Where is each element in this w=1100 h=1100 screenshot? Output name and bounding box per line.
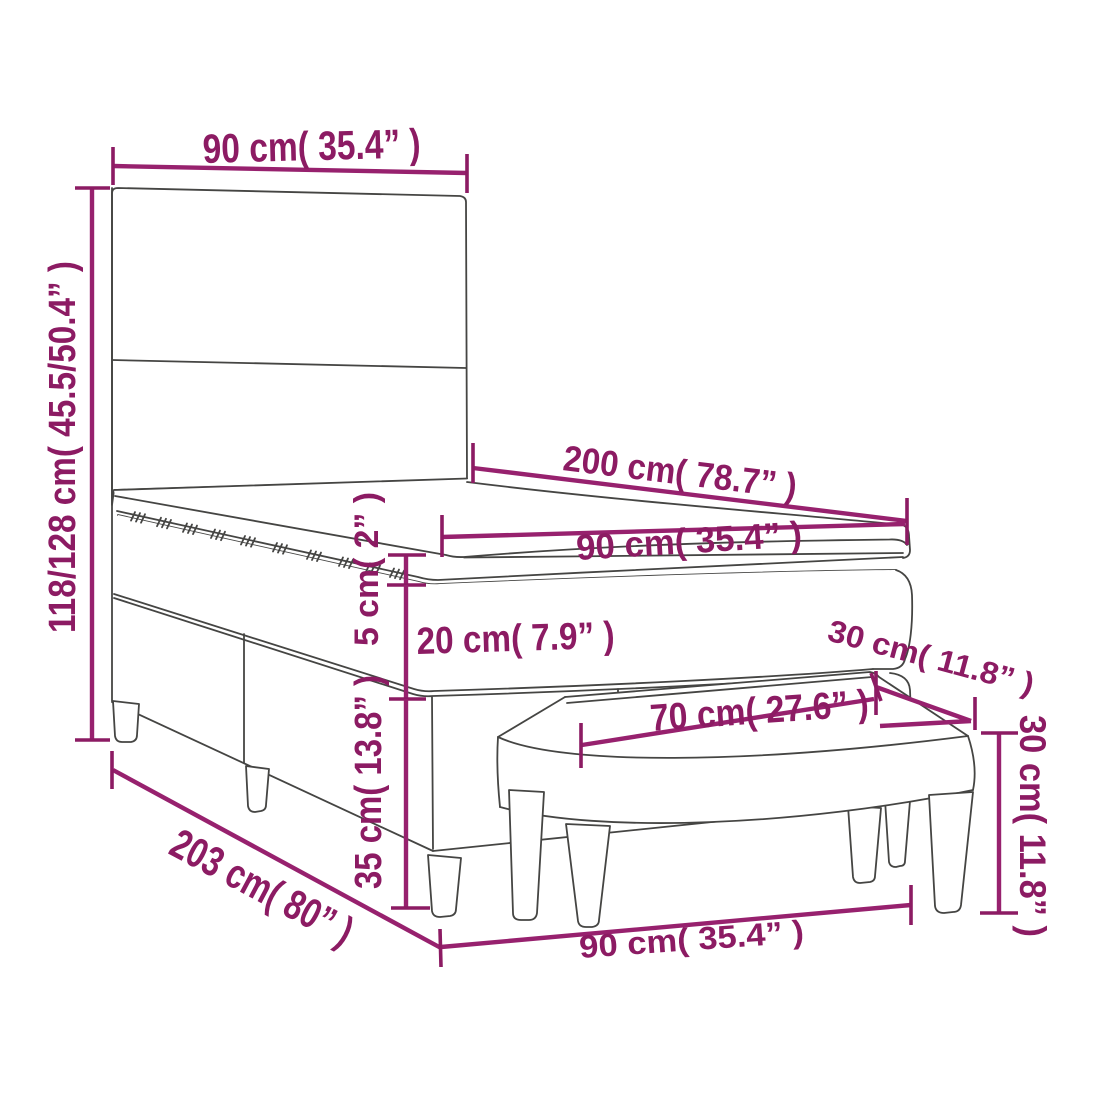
svg-text:35 cm( 13.8” ): 35 cm( 13.8” ) <box>348 675 390 889</box>
svg-text:90 cm( 35.4” ): 90 cm( 35.4” ) <box>202 120 421 172</box>
svg-text:20 cm( 7.9” ): 20 cm( 7.9” ) <box>416 615 615 663</box>
svg-text:30 cm( 11.8” ): 30 cm( 11.8” ) <box>1012 715 1053 937</box>
svg-text:5 cm( 2” ): 5 cm( 2” ) <box>348 492 386 646</box>
svg-text:118/128 cm( 45.5/50.4” ): 118/128 cm( 45.5/50.4” ) <box>42 261 84 633</box>
